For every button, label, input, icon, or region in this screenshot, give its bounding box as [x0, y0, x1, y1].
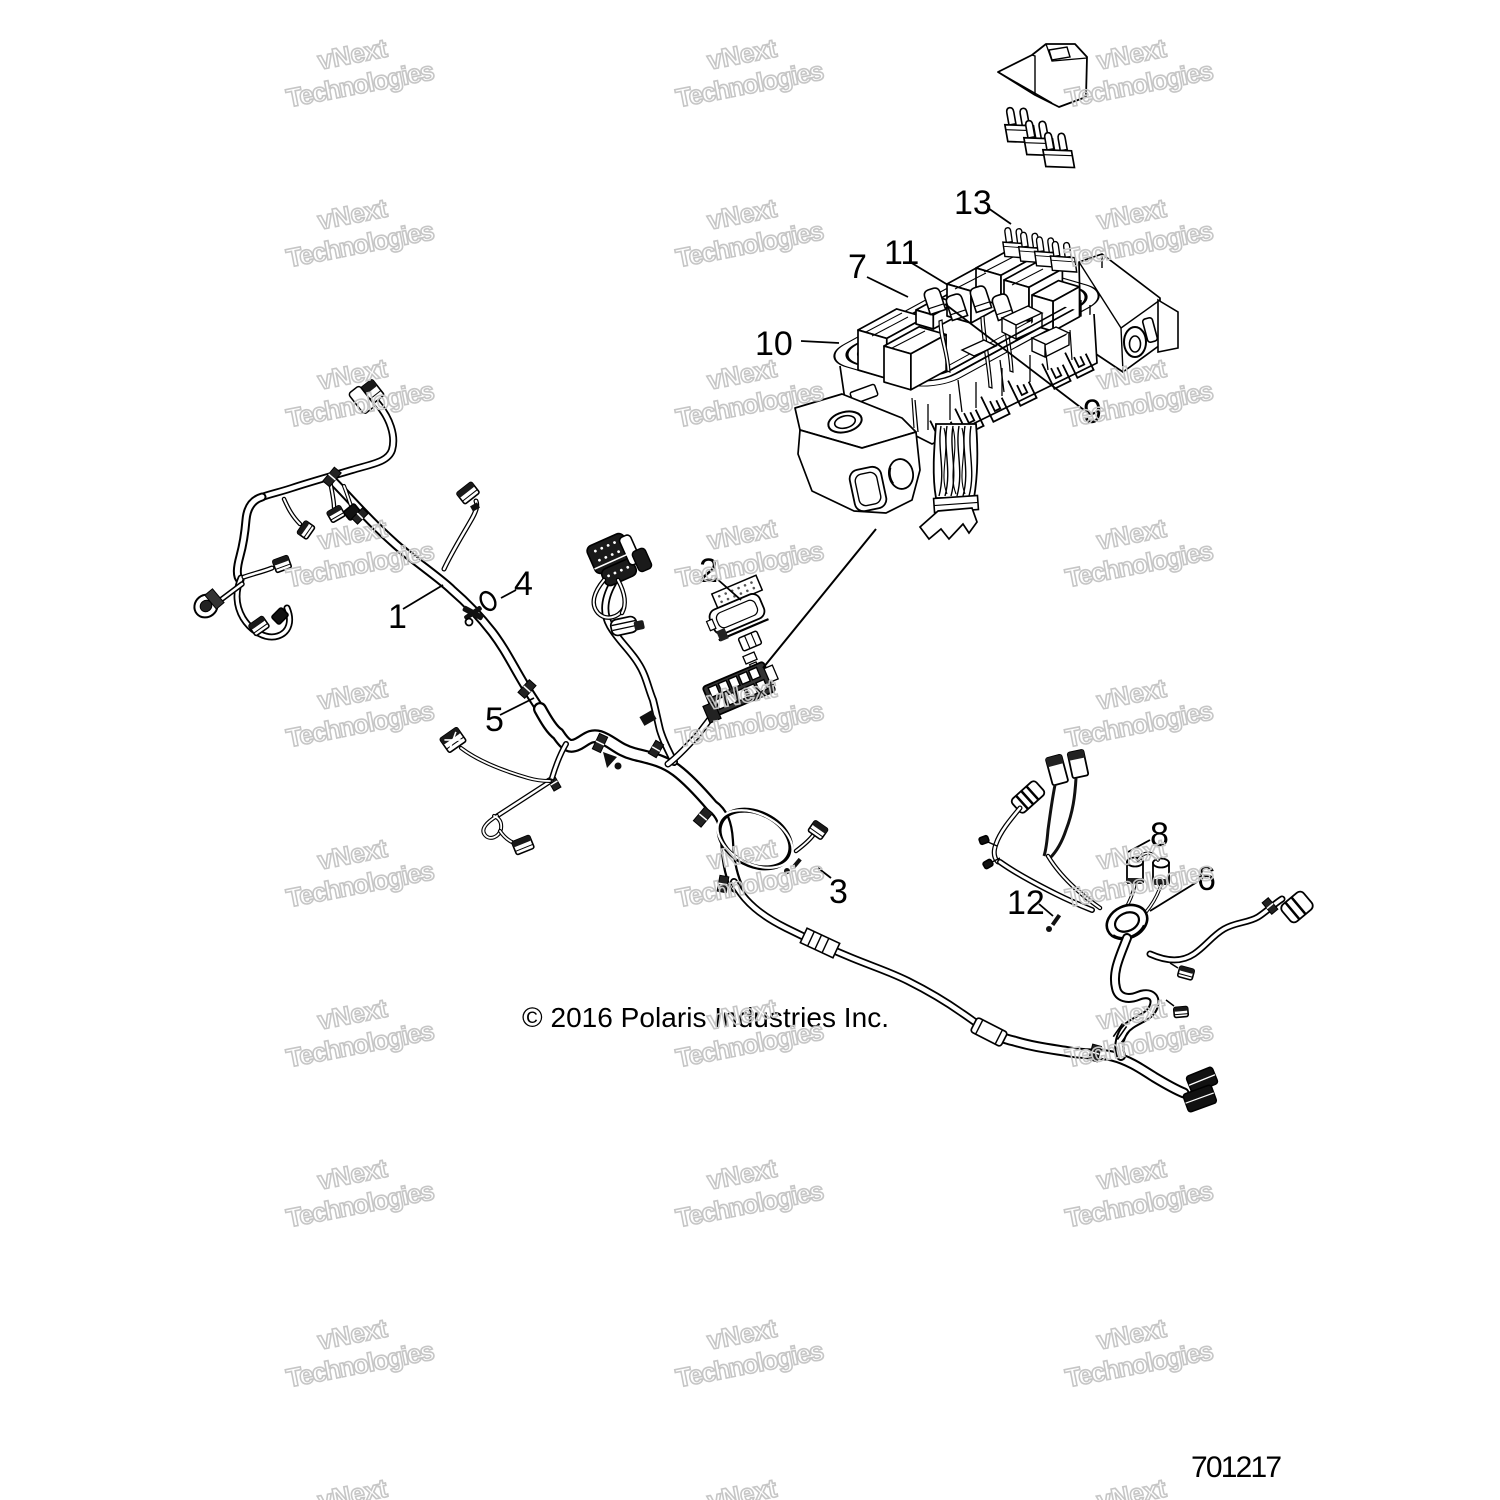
svg-text:13: 13 — [954, 184, 992, 222]
svg-text:701217: 701217 — [1191, 1451, 1282, 1484]
svg-text:4: 4 — [514, 565, 533, 603]
svg-text:5: 5 — [485, 701, 504, 739]
svg-text:1: 1 — [388, 598, 407, 636]
svg-text:12: 12 — [1007, 884, 1045, 922]
svg-text:7: 7 — [848, 248, 867, 286]
svg-text:11: 11 — [884, 234, 919, 272]
svg-text:3: 3 — [829, 873, 848, 911]
